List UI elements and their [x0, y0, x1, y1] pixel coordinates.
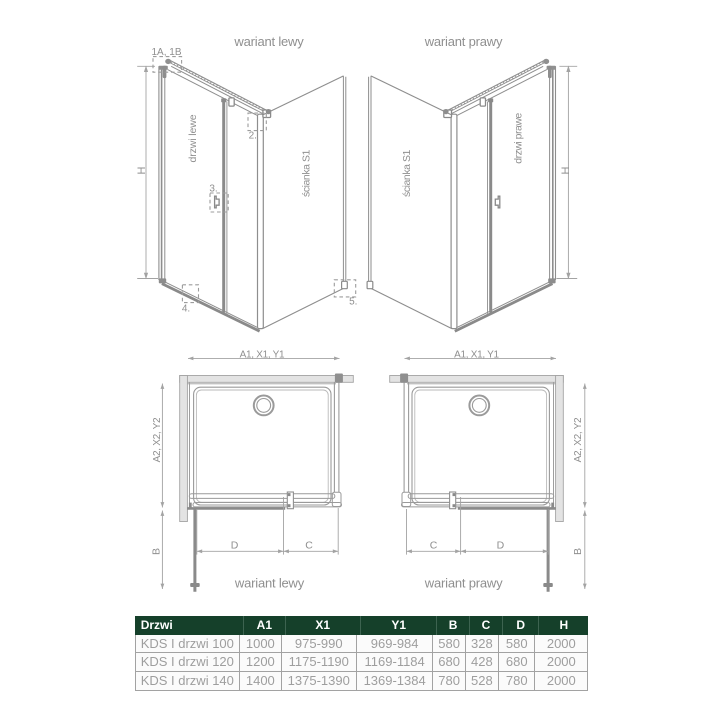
svg-text:drzwi lewe: drzwi lewe [187, 114, 199, 162]
svg-text:D: D [497, 540, 505, 552]
svg-text:5.: 5. [349, 297, 357, 308]
svg-text:2.: 2. [249, 131, 257, 142]
svg-text:4.: 4. [182, 304, 190, 315]
svg-text:drzwi prawe: drzwi prawe [513, 113, 525, 164]
svg-text:wariant prawy: wariant prawy [424, 34, 503, 49]
svg-text:ścianka S1: ścianka S1 [301, 149, 313, 196]
svg-text:A1, X1, Y1: A1, X1, Y1 [240, 349, 285, 360]
svg-text:B: B [572, 548, 584, 555]
svg-text:wariant lewy: wariant lewy [233, 34, 304, 49]
svg-text:wariant prawy: wariant prawy [424, 575, 503, 590]
svg-text:B: B [151, 548, 163, 555]
svg-text:A2, X2, Y2: A2, X2, Y2 [573, 417, 584, 462]
svg-text:H: H [560, 166, 572, 174]
svg-text:1A, 1B: 1A, 1B [151, 47, 181, 58]
svg-text:D: D [231, 540, 239, 552]
svg-text:H: H [136, 166, 148, 174]
svg-text:3.: 3. [209, 184, 217, 195]
svg-text:ścianka S1: ścianka S1 [401, 149, 413, 196]
svg-text:wariant lewy: wariant lewy [234, 575, 305, 590]
svg-text:A1, X1, Y1: A1, X1, Y1 [454, 349, 499, 360]
svg-text:C: C [305, 540, 313, 552]
svg-text:C: C [430, 540, 438, 552]
svg-text:A2, X2, Y2: A2, X2, Y2 [152, 417, 163, 462]
